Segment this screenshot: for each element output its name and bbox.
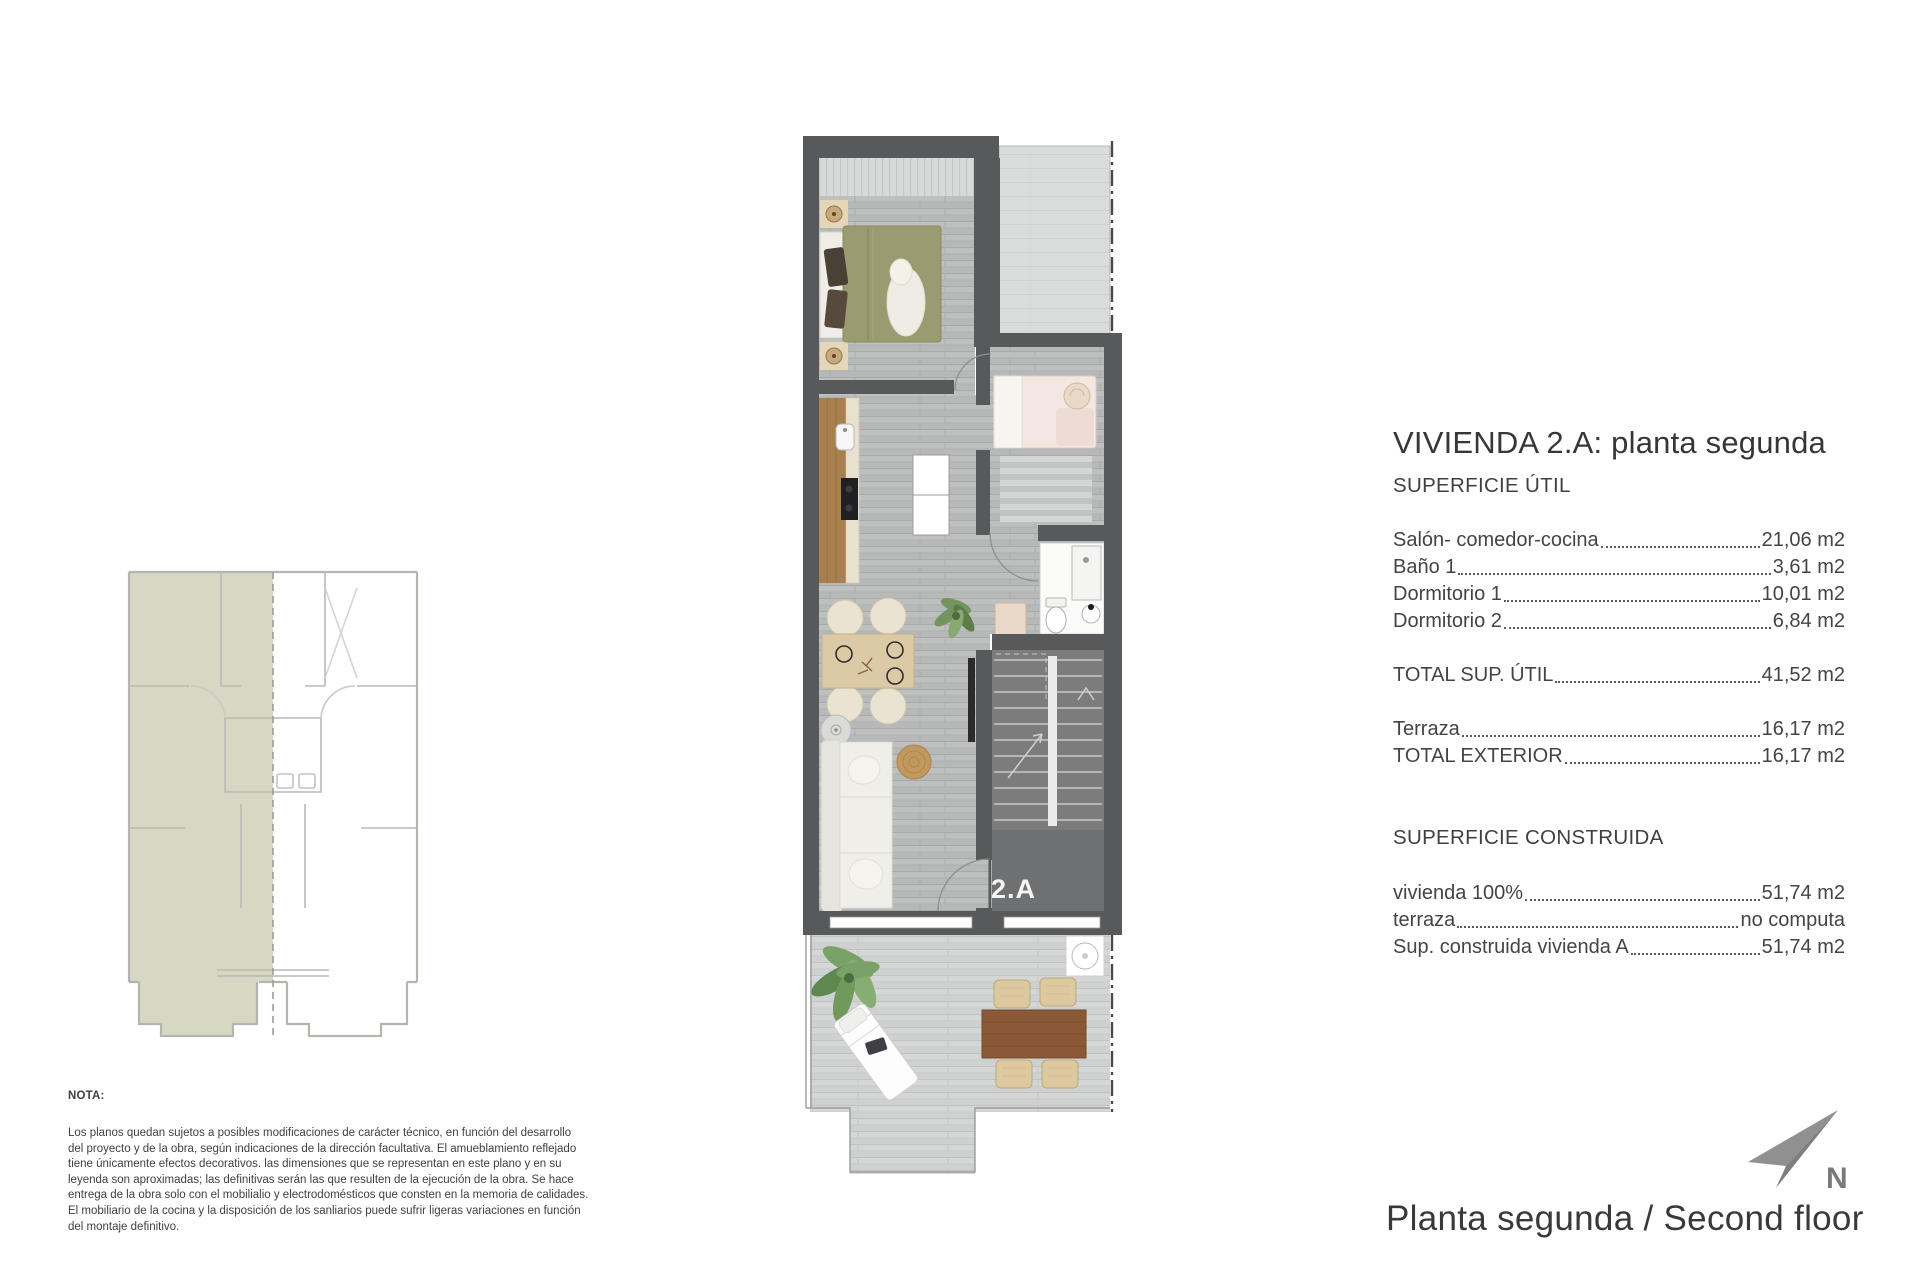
chair-icon [827,600,863,636]
area-row-value: no computa [1740,909,1845,932]
page-title: VIVIENDA 2.A: planta segunda [1393,425,1845,461]
area-row-value: 51,74 m2 [1762,882,1845,905]
area-row-value: 16,17 m2 [1762,745,1845,768]
dot-leader [1504,600,1760,602]
area-row-label: Terraza [1393,718,1460,741]
area-row: Dormitorio 1 10,01 m2 [1393,579,1845,606]
area-row-label: TOTAL EXTERIOR [1393,745,1563,768]
key-plan [125,568,421,1040]
north-label: N [1826,1162,1848,1192]
area-row: terraza no computa [1393,905,1845,932]
stairwell [992,650,1104,911]
area-row-value: 6,84 m2 [1773,610,1845,633]
terrace-slider-door [830,917,972,928]
total-exterior-row: TOTAL EXTERIOR 16,17 m2 [1393,741,1845,768]
dot-leader [1555,681,1759,683]
north-compass: N [1742,1108,1854,1192]
surface-rows: Salón- comedor-cocina 21,06 m2 Baño 1 3,… [1393,525,1845,959]
surface-table: VIVIENDA 2.A: planta segunda SUPERFICIE … [1393,425,1845,959]
dot-leader [1504,627,1771,629]
nota-block: NOTA: Los planos quedan sujetos a posibl… [68,1090,613,1235]
dot-leader [1462,735,1760,737]
area-row: Salón- comedor-cocina 21,06 m2 [1393,525,1845,552]
superficie-construida-header: SUPERFICIE CONSTRUIDA [1393,826,1845,850]
rug-icon [1000,456,1092,522]
area-row-value: 10,01 m2 [1762,583,1845,606]
area-row-label: Dormitorio 1 [1393,583,1502,606]
shower-tray-icon [1072,546,1101,600]
single-bed-icon [994,376,1096,448]
area-row-value: 16,17 m2 [1762,718,1845,741]
area-row-label: TOTAL SUP. ÚTIL [1393,664,1553,687]
superficie-util-header: SUPERFICIE ÚTIL [1393,474,1845,498]
floor-caption: Planta segunda / Second floor [1386,1199,1864,1239]
nota-heading: NOTA: [68,1090,613,1102]
area-row-value: 3,61 m2 [1773,556,1845,579]
unit-label: 2.A [991,874,1036,904]
laundry-unit-icon [995,603,1026,635]
area-row: vivienda 100% 51,74 m2 [1393,878,1845,905]
nota-body: Los planos quedan sujetos a posibles mod… [68,1126,613,1235]
dot-leader [1565,762,1760,764]
chair-icon [870,598,906,634]
coffee-table-icon [897,745,931,779]
curtain-band [819,158,974,196]
sofa-icon [821,740,892,912]
dot-leader [1457,926,1738,928]
area-row: Sup. construida vivienda A 51,74 m2 [1393,932,1845,959]
area-row-value: 41,52 m2 [1762,664,1845,687]
dot-leader [1601,546,1760,548]
area-row-label: Dormitorio 2 [1393,610,1502,633]
area-row: Baño 1 3,61 m2 [1393,552,1845,579]
area-row-label: Sup. construida vivienda A [1393,936,1629,959]
area-row-label: Salón- comedor-cocina [1393,529,1599,552]
key-plan-highlight [129,572,273,1036]
north-arrow-icon [1748,1110,1838,1166]
area-row-value: 21,06 m2 [1762,529,1845,552]
area-row-value: 51,74 m2 [1762,936,1845,959]
dot-leader [1458,573,1770,575]
dot-leader [1525,899,1760,901]
landing-door [1004,917,1100,928]
area-row: Dormitorio 2 6,84 m2 [1393,606,1845,633]
area-row-label: vivienda 100% [1393,882,1523,905]
toilet-icon [1046,598,1066,607]
dining-table-icon [822,634,914,688]
plan-sheet: 2.A VIVIENDA 2.A: planta segunda SUPERFI… [0,0,1920,1280]
area-row: Terraza 16,17 m2 [1393,714,1845,741]
area-row-label: Baño 1 [1393,556,1456,579]
main-floor-plan: 2.A [795,128,1130,1180]
stair-stringer [1048,656,1057,826]
cooktop-icon [841,478,858,520]
total-util-row: TOTAL SUP. ÚTIL 41,52 m2 [1393,660,1845,687]
area-row-label: terraza [1393,909,1455,932]
upper-roof-area [999,146,1110,334]
sink-icon [836,424,854,450]
dot-leader [1631,953,1760,955]
tv-icon [968,658,975,742]
chair-icon [870,688,906,724]
double-bed-icon [820,226,941,342]
